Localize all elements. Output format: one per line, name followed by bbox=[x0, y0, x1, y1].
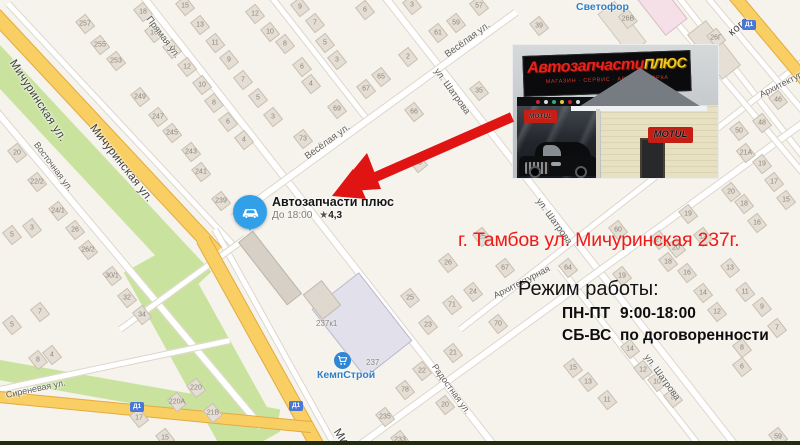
street-label: Сиреневая ул. bbox=[5, 378, 66, 400]
schedule-row-weekdays: ПН-ПТ 9:00-18:00 bbox=[518, 305, 769, 323]
street-label: ул. Шатрова bbox=[432, 66, 473, 116]
building: 21 bbox=[449, 350, 457, 357]
building: 243 bbox=[185, 149, 197, 156]
building: 10 bbox=[198, 82, 206, 89]
building: 61 bbox=[434, 30, 442, 37]
cart-icon bbox=[337, 355, 348, 366]
building: 48 bbox=[758, 120, 766, 127]
building: 20 bbox=[13, 150, 21, 157]
building: 6 bbox=[226, 119, 230, 126]
building: 8 bbox=[283, 41, 287, 48]
poi-label[interactable]: КемпСтрой bbox=[317, 369, 375, 381]
building: 239 bbox=[215, 198, 227, 205]
building: 8 bbox=[740, 345, 744, 352]
building: 241 bbox=[195, 169, 207, 176]
building: 24 bbox=[469, 289, 477, 296]
building: 21В bbox=[207, 410, 219, 417]
building: 247 bbox=[152, 114, 164, 121]
building: 6 bbox=[740, 364, 744, 371]
building: 50 bbox=[735, 128, 743, 135]
building: 65 bbox=[377, 74, 385, 81]
building: 13 bbox=[584, 379, 592, 386]
building: 255 bbox=[94, 42, 106, 49]
building: 13 bbox=[196, 22, 204, 29]
building: 7 bbox=[241, 77, 245, 84]
building: 35 bbox=[475, 88, 483, 95]
pin-tail bbox=[245, 223, 255, 236]
building: 9 bbox=[227, 57, 231, 64]
building: 19 bbox=[684, 211, 692, 218]
building: 34 bbox=[138, 312, 146, 319]
building: 11 bbox=[603, 397, 610, 404]
building: 64 bbox=[564, 265, 572, 272]
weekdays-label: ПН-ПТ bbox=[562, 305, 620, 323]
building: 14 bbox=[626, 346, 634, 353]
building: 2 bbox=[406, 54, 410, 61]
building: 5 bbox=[10, 232, 14, 239]
building: 21А bbox=[740, 150, 752, 157]
building: 22/2 bbox=[30, 179, 44, 186]
building: 12 bbox=[183, 64, 191, 71]
roof-gable bbox=[577, 68, 703, 108]
building: 4 bbox=[309, 81, 313, 88]
building: 26Г bbox=[710, 35, 722, 42]
building: 3 bbox=[271, 114, 275, 121]
weekdays-hours: 9:00-18:00 bbox=[620, 305, 696, 323]
building: 26 bbox=[444, 260, 452, 267]
building: 257 bbox=[79, 21, 91, 28]
building: 30/1 bbox=[105, 273, 119, 280]
building: 5 bbox=[323, 40, 327, 47]
building: 69 bbox=[333, 106, 341, 113]
building: 20 bbox=[727, 189, 735, 196]
building: 3 bbox=[410, 2, 414, 9]
rating-star-icon: ★ bbox=[319, 210, 328, 221]
building: 17 bbox=[135, 415, 143, 422]
building: 3 bbox=[335, 57, 339, 64]
building: 11 bbox=[211, 40, 218, 47]
poi-label[interactable]: Светофор bbox=[576, 1, 629, 13]
building: 73 bbox=[299, 136, 307, 143]
shop-door bbox=[640, 138, 665, 178]
building: 59 bbox=[452, 20, 460, 27]
poi-subtitle: До 18:00★4,3 bbox=[272, 210, 394, 221]
address-annotation: г. Тамбов ул. Мичуринская 237г. bbox=[458, 229, 739, 252]
street-label: Мичуринская ул. bbox=[7, 58, 69, 144]
street-label: Мичуринская ул. bbox=[87, 122, 155, 204]
car-icon bbox=[241, 203, 260, 222]
building: 13 bbox=[726, 265, 734, 272]
building: 5 bbox=[256, 95, 260, 102]
building: 9 bbox=[298, 4, 302, 11]
building: 17 bbox=[770, 179, 778, 186]
building: 24/1 bbox=[51, 208, 65, 215]
building: 3 bbox=[30, 225, 34, 232]
building: 6 bbox=[363, 7, 367, 14]
building: 20 bbox=[441, 402, 449, 409]
building: 46 bbox=[774, 97, 782, 104]
map-pin-autoparts[interactable] bbox=[233, 195, 267, 229]
schedule-row-weekend: СБ-ВС по договоренности bbox=[518, 327, 769, 345]
building: 25 bbox=[406, 295, 414, 302]
poi-hours: До 18:00 bbox=[272, 210, 312, 221]
building: 26/2 bbox=[81, 247, 95, 254]
building: 16 bbox=[753, 220, 761, 227]
building: 7 bbox=[38, 309, 42, 316]
building: 18 bbox=[664, 259, 672, 266]
building-label: 237 bbox=[366, 358, 379, 367]
building: 15 bbox=[569, 365, 577, 372]
pin-label[interactable]: Автозапчасти плюс До 18:00★4,3 bbox=[272, 195, 394, 221]
schedule-title: Режим работы: bbox=[518, 278, 769, 301]
building: 23 bbox=[424, 322, 432, 329]
building: 32 bbox=[123, 295, 131, 302]
building: 220А bbox=[169, 399, 185, 406]
building: 67 bbox=[501, 265, 509, 272]
building: 4 bbox=[50, 352, 54, 359]
building: 67 bbox=[362, 86, 370, 93]
building: 16 bbox=[683, 270, 691, 277]
building: 39 bbox=[535, 23, 543, 30]
building: 70 bbox=[494, 321, 502, 328]
poi-rating: 4,3 bbox=[328, 210, 342, 221]
building: 245 bbox=[166, 130, 178, 137]
poi-name: Автозапчасти плюс bbox=[272, 195, 394, 209]
building: 8 bbox=[212, 100, 216, 107]
building: 66 bbox=[410, 109, 418, 116]
building-label: 237к1 bbox=[316, 319, 337, 328]
building: 12 bbox=[639, 367, 647, 374]
building: 15 bbox=[782, 197, 790, 204]
motul-sign: MOTUL bbox=[648, 127, 693, 143]
building: 10 bbox=[266, 29, 274, 36]
building: 6 bbox=[300, 64, 304, 71]
building: 15 bbox=[181, 3, 189, 10]
building: 78 bbox=[401, 387, 409, 394]
building: 22 bbox=[418, 368, 426, 375]
building: 18 bbox=[139, 9, 147, 16]
weekend-label: СБ-ВС bbox=[562, 327, 620, 345]
building: 253 bbox=[110, 58, 122, 65]
storefront-photo: MOTUL MOTUL АвтозапчастиПЛЮС МАГАЗИН · С… bbox=[513, 45, 718, 178]
roof-soffit bbox=[571, 106, 707, 111]
building: 18 bbox=[740, 201, 748, 208]
building: 249 bbox=[134, 94, 146, 101]
building: 5 bbox=[10, 322, 14, 329]
building: 26 bbox=[71, 227, 79, 234]
mercedes-car bbox=[519, 136, 599, 178]
building: 33 bbox=[414, 160, 422, 167]
building: 220 bbox=[190, 385, 202, 392]
work-hours-annotation: Режим работы: ПН-ПТ 9:00-18:00 СБ-ВС по … bbox=[518, 278, 769, 345]
building: 59 bbox=[774, 434, 782, 441]
kempstroy-poi-icon[interactable] bbox=[334, 352, 351, 369]
road-number-badge: Д1 bbox=[742, 20, 756, 30]
downpipe bbox=[596, 109, 600, 178]
building: 12 bbox=[251, 11, 259, 18]
building: 4 bbox=[242, 137, 246, 144]
building: 57 bbox=[475, 3, 483, 10]
building: 8 bbox=[36, 357, 40, 364]
bottom-edge-bar bbox=[0, 441, 800, 445]
building: 7 bbox=[775, 325, 779, 332]
building: 71 bbox=[448, 302, 456, 309]
road-number-badge: Д1 bbox=[289, 401, 303, 411]
motul-logo-small: MOTUL bbox=[524, 110, 557, 123]
building: 235 bbox=[379, 414, 391, 421]
building: 19 bbox=[758, 161, 766, 168]
building: 26В bbox=[622, 16, 634, 23]
road-number-badge: Д1 bbox=[130, 402, 144, 412]
weekend-hours: по договоренности bbox=[620, 327, 769, 345]
building: 7 bbox=[313, 20, 317, 27]
